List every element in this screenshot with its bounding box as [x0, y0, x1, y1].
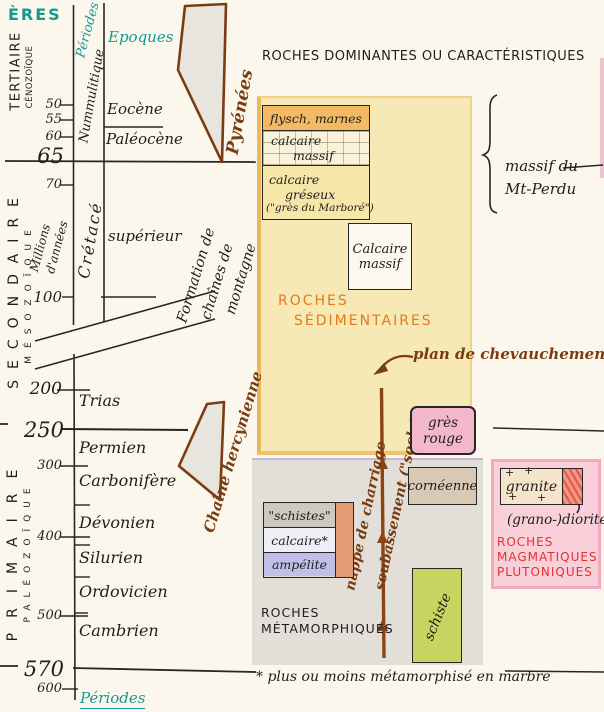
pyrenees-orogeny-wedge — [178, 4, 226, 162]
sedimentaires-label-1: ROCHES — [278, 293, 349, 309]
line-250ma — [62, 429, 188, 430]
massif-du-label: massif du — [505, 157, 578, 175]
flysch-marnes-box: flysch, marnes — [263, 106, 369, 131]
schiste-box: schiste — [412, 568, 462, 663]
period-permien: Permien — [79, 438, 146, 457]
gres-rouge-box: grès rouge — [410, 406, 476, 455]
calcaire-massif-stack-box: calcaire massif — [263, 131, 369, 166]
diorite-box — [562, 469, 582, 504]
corneenne-box: cornéenne — [408, 467, 477, 505]
period-devonien: Dévonien — [79, 513, 155, 532]
age-570: 570 — [14, 657, 64, 681]
line-570ma — [73, 668, 256, 672]
age-400: 400 — [28, 529, 62, 544]
age-70: 70 — [28, 177, 62, 192]
grano-diorite-label: (grano-)diorite — [507, 512, 604, 528]
epoch-paleocene: Paléocène — [106, 130, 183, 148]
metamorphiques-label-1: ROCHES — [261, 605, 319, 620]
marble-footnote: * plus ou moins métamorphisé en marbre — [256, 669, 551, 685]
calcaire-asterisk-box: calcaire* — [264, 528, 335, 553]
epoch-dividers — [101, 127, 163, 297]
age-250: 250 — [14, 418, 64, 442]
age-60: 60 — [28, 129, 62, 144]
granite-plus-4: + — [537, 491, 546, 504]
sedimentaires-label-2: SÉDIMENTAIRES — [294, 313, 433, 329]
metamorphic-rock-stack: "schistes" calcaire* ampélite — [263, 502, 354, 578]
period-trias: Trias — [79, 391, 120, 410]
age-500: 500 — [28, 608, 62, 623]
mt-perdu-label: Mt-Perdu — [505, 180, 576, 198]
granite-plus-2: + — [524, 464, 533, 477]
metamorphic-stack-labels: "schistes" calcaire* ampélite — [264, 503, 336, 577]
eres-header: ÈRES — [8, 5, 62, 24]
calcaire-greseux-box: calcaire gréseux ("grès du Marboré") — [263, 166, 369, 219]
epoch-eocene: Eocène — [107, 100, 163, 118]
periodes-header-bottom: Périodes — [80, 689, 145, 709]
axis-break-lower — [35, 319, 215, 369]
geological-timescale-diagram: ÈRES Périodes Epoques Périodes TERTIAIRE… — [0, 0, 604, 712]
era-primaire: PRIMAIRE — [5, 455, 21, 642]
granite-plus-3: + — [508, 490, 517, 503]
period-carbonifere: Carbonifère — [79, 471, 176, 490]
age-600: 600 — [28, 681, 62, 696]
plutoniques-label-1: ROCHES — [497, 535, 553, 549]
era-primaire-sub: PALÉOZOÏQUE — [23, 481, 33, 622]
main-axis-lower — [74, 354, 75, 700]
cretace-stage-superieur: supérieur — [108, 227, 182, 245]
era-tertiaire: TERTIAIRE — [9, 31, 24, 111]
granite-plus-1: + — [505, 466, 514, 479]
period-ordovicien: Ordovicien — [79, 582, 168, 601]
age-300: 300 — [28, 458, 62, 473]
thrust-plane-arrow — [382, 356, 413, 367]
plutoniques-label-2: MAGMATIQUES — [497, 550, 598, 564]
age-50: 50 — [28, 97, 62, 112]
period-silurien: Silurien — [79, 548, 143, 567]
plutoniques-label-3: PLUTONIQUES — [497, 565, 593, 579]
metamorphiques-label-2: MÉTAMORPHIQUES — [261, 621, 394, 636]
age-100: 100 — [28, 288, 62, 306]
era-secondaire: SECONDAIRE — [6, 187, 22, 389]
thrust-plane-arrowhead — [373, 363, 388, 375]
ampelite-box: ampélite — [264, 553, 335, 576]
metamorphic-stack-strip — [336, 503, 353, 577]
age-200: 200 — [28, 379, 62, 399]
mt-perdu-rock-stack: flysch, marnes calcaire massif calcaire … — [262, 105, 370, 220]
thrust-plane-line — [382, 388, 385, 658]
epoques-header: Epoques — [108, 28, 173, 46]
schistes-box: "schistes" — [264, 503, 335, 528]
line-250ma-right — [493, 428, 604, 431]
plan-chevauchement-label: plan de chevauchement — [413, 345, 604, 363]
age-65: 65 — [14, 144, 64, 168]
calcaire-massif-box: Calcaire massif — [348, 223, 412, 290]
massif-brace — [483, 95, 497, 213]
period-cambrien: Cambrien — [79, 621, 159, 640]
age-55: 55 — [28, 112, 62, 127]
page-title: ROCHES DOMINANTES OU CARACTÉRISTIQUES — [262, 49, 585, 64]
